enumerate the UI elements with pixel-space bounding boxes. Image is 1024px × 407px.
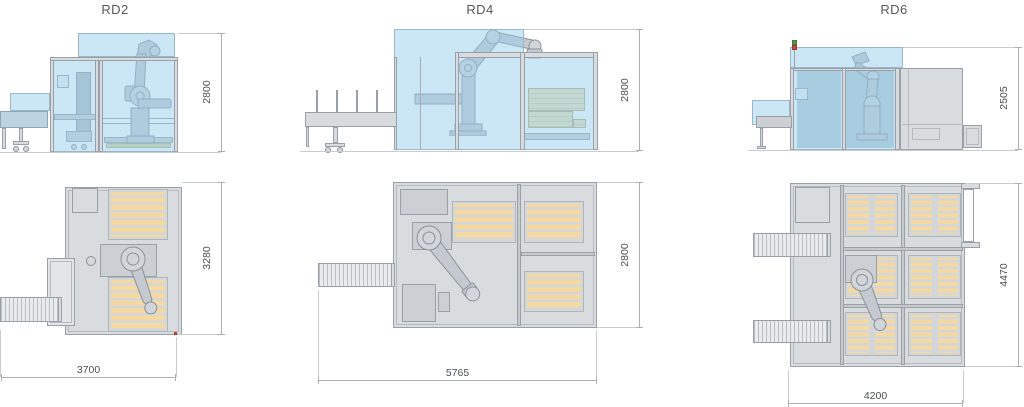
- dimension-tick: [1015, 149, 1022, 150]
- frame-post: [394, 57, 397, 150]
- dimension-tick: [1015, 47, 1022, 48]
- conveyor-end-cap: [58, 297, 62, 322]
- cabinet-seam: [902, 124, 961, 125]
- extension-line: [963, 370, 964, 403]
- dimension-tick: [636, 150, 643, 151]
- conveyor-leg: [306, 127, 309, 147]
- glass-chamber: [524, 57, 597, 150]
- glass-tall-panel: [394, 29, 524, 150]
- extension-line: [600, 151, 639, 152]
- red-marker: [174, 332, 177, 335]
- pallet-position: [524, 201, 584, 243]
- dimension-label-depth: 4470: [997, 245, 1011, 305]
- dimension-label-depth: 3280: [200, 228, 214, 288]
- frame-post: [520, 52, 525, 150]
- machine-title: RD6: [864, 2, 924, 17]
- guide-post: [356, 90, 358, 112]
- pallet-position: [908, 312, 961, 356]
- plan-annex: [72, 188, 98, 213]
- floor-line: [748, 150, 988, 151]
- extension-line: [903, 47, 1018, 48]
- dimension-line: [639, 182, 640, 328]
- roller-conveyor: [0, 297, 62, 322]
- extension-line: [182, 152, 221, 153]
- frame-post: [50, 57, 54, 152]
- dimension-tick: [636, 29, 643, 30]
- door-seam: [420, 57, 421, 150]
- safety-door: [963, 189, 974, 242]
- dimension-tick: [218, 151, 225, 152]
- extension-line: [176, 337, 177, 377]
- pedestal-base: [13, 141, 29, 145]
- dimension-line: [318, 380, 597, 381]
- robot-arm-plan: [95, 240, 170, 320]
- extension-line: [985, 150, 1018, 151]
- extension-line: [178, 33, 221, 34]
- dimension-tick: [218, 334, 225, 335]
- caster-wheel: [337, 147, 343, 153]
- glass-module: [50, 57, 99, 152]
- conveyor-bed: [0, 111, 48, 128]
- glass-top-panel: [790, 47, 903, 68]
- dimension-line: [1, 377, 176, 378]
- cabinet-seam: [908, 70, 909, 148]
- extension-line: [965, 183, 1018, 184]
- beacon-light-red: [792, 45, 797, 50]
- conveyor-guard: [10, 93, 50, 111]
- dimension-line: [639, 29, 640, 151]
- pallet-position: [908, 193, 961, 237]
- dimension-label-height: 2800: [200, 62, 214, 122]
- dimension-line: [221, 33, 222, 152]
- roller-conveyor: [318, 263, 395, 287]
- extension-line: [182, 182, 221, 183]
- conveyor-leg: [2, 128, 6, 149]
- dimension-tick: [1015, 183, 1022, 184]
- dimension-line: [788, 403, 963, 404]
- caster-wheel: [325, 147, 331, 153]
- pedestal-post: [333, 127, 338, 143]
- beacon-pole: [794, 48, 795, 68]
- pallet-position: [108, 189, 168, 240]
- dimension-label-width: 5765: [318, 367, 597, 379]
- frame-post: [455, 52, 459, 150]
- glass-back-panel: [78, 33, 175, 57]
- dimension-tick: [636, 182, 643, 183]
- robot-arm-plan: [830, 245, 910, 345]
- dimension-tick: [636, 327, 643, 328]
- frame-post: [842, 68, 846, 150]
- conveyor-leg: [760, 128, 763, 148]
- machine-title: RD2: [85, 2, 145, 17]
- glass-module: [99, 57, 178, 152]
- dimension-label-width: 4200: [788, 390, 963, 402]
- frame-rail: [455, 52, 597, 58]
- dimension-label-width: 3700: [1, 364, 176, 376]
- roller-conveyor: [753, 233, 831, 257]
- pallet-position: [524, 271, 584, 312]
- dimension-line: [221, 182, 222, 335]
- pedestal-post: [19, 128, 23, 142]
- guide-post: [376, 90, 378, 112]
- machine-module: [400, 189, 448, 215]
- dimension-tick: [1015, 366, 1022, 367]
- outrigger-box-inner: [966, 128, 979, 145]
- dimension-label-height: 2505: [997, 68, 1011, 128]
- pallet-position: [845, 193, 898, 237]
- robot-arm-plan: [395, 215, 505, 315]
- conveyor-bed: [305, 112, 397, 127]
- frame-post: [99, 57, 103, 152]
- extension-line: [965, 366, 1018, 367]
- extension-line: [597, 182, 639, 183]
- plan-annex: [795, 187, 830, 223]
- dimension-tick: [218, 33, 225, 34]
- extension-line: [597, 327, 639, 328]
- frame-rail: [50, 57, 178, 61]
- dimension-label-depth: 2800: [618, 225, 632, 285]
- frame-post: [790, 68, 794, 150]
- machine-title: RD4: [450, 2, 510, 17]
- guide-post: [336, 90, 338, 112]
- dimension-line: [1018, 183, 1019, 367]
- extension-line: [178, 334, 221, 335]
- frame-post: [174, 57, 178, 152]
- frame-post: [593, 52, 598, 150]
- door-cap: [961, 242, 980, 248]
- dimension-drawing-canvas: RD2: [0, 0, 1024, 407]
- floor-line: [300, 151, 605, 152]
- floor-line: [0, 152, 182, 153]
- pallet-position: [908, 255, 961, 299]
- dimension-label-height: 2800: [618, 60, 632, 120]
- conveyor-bed: [756, 116, 792, 128]
- conveyor-foot: [757, 146, 766, 149]
- divider-wall: [521, 252, 595, 256]
- dimension-line: [1018, 47, 1019, 150]
- cabinet-detail: [912, 128, 940, 140]
- roller-conveyor: [753, 320, 831, 343]
- extension-line: [524, 29, 639, 30]
- guide-post: [316, 90, 318, 112]
- dimension-tick: [218, 182, 225, 183]
